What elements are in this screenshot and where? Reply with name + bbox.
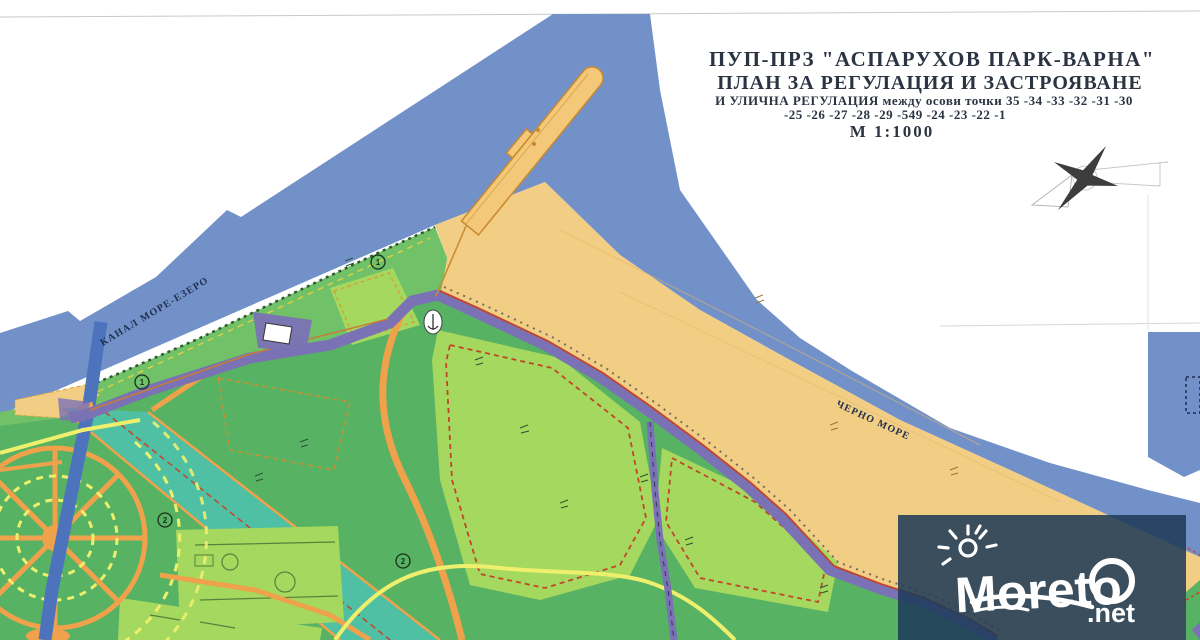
plan-regulation-line: И УЛИЧНА РЕГУЛАЦИЯ между осови точки 35 …: [715, 93, 1133, 108]
map-canvas: 1 1 2 2 КАНАЛ МОРЕ-ЕЗЕРО ЧЕРНО МОРЕ ПУП-…: [0, 0, 1200, 640]
plan-points-line: -25 -26 -27 -28 -29 -549 -24 -23 -22 -1: [784, 107, 1006, 122]
pier-detail: [532, 142, 536, 146]
logo-tld: .net: [1087, 598, 1135, 628]
marker-label: 2: [401, 557, 406, 566]
plan-scale: М 1:1000: [850, 122, 934, 141]
adjacent-sheet-panel: [1148, 332, 1200, 477]
marker-label: 1: [376, 258, 381, 267]
plan-title: ПУП-ПРЗ "АСПАРУХОВ ПАРК-ВАРНА": [709, 47, 1155, 71]
service-building: [263, 323, 292, 344]
plan-subtitle: ПЛАН ЗА РЕГУЛАЦИЯ И ЗАСТРОЯВАНЕ: [717, 72, 1143, 94]
road-junction-area: [58, 398, 90, 422]
marker-label: 1: [140, 378, 145, 387]
planning-map-image: 1 1 2 2 КАНАЛ МОРЕ-ЕЗЕРО ЧЕРНО МОРЕ ПУП-…: [0, 0, 1200, 640]
watermark-overlay: Moreto .net: [898, 515, 1186, 640]
pier-detail: [536, 128, 540, 132]
marker-label: 2: [163, 516, 168, 525]
